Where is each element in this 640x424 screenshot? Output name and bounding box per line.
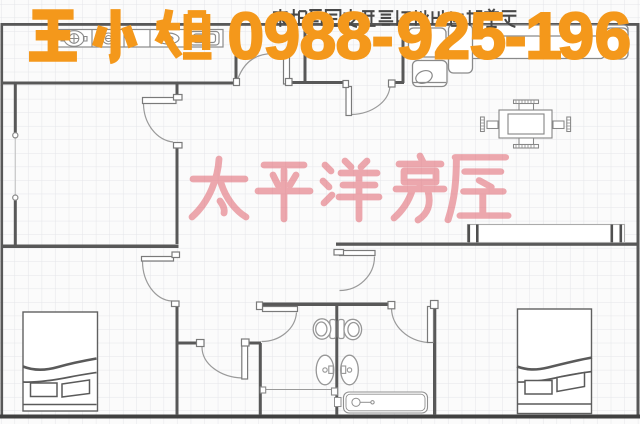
svg-text:0988-925-196: 0988-925-196 [228, 0, 632, 73]
